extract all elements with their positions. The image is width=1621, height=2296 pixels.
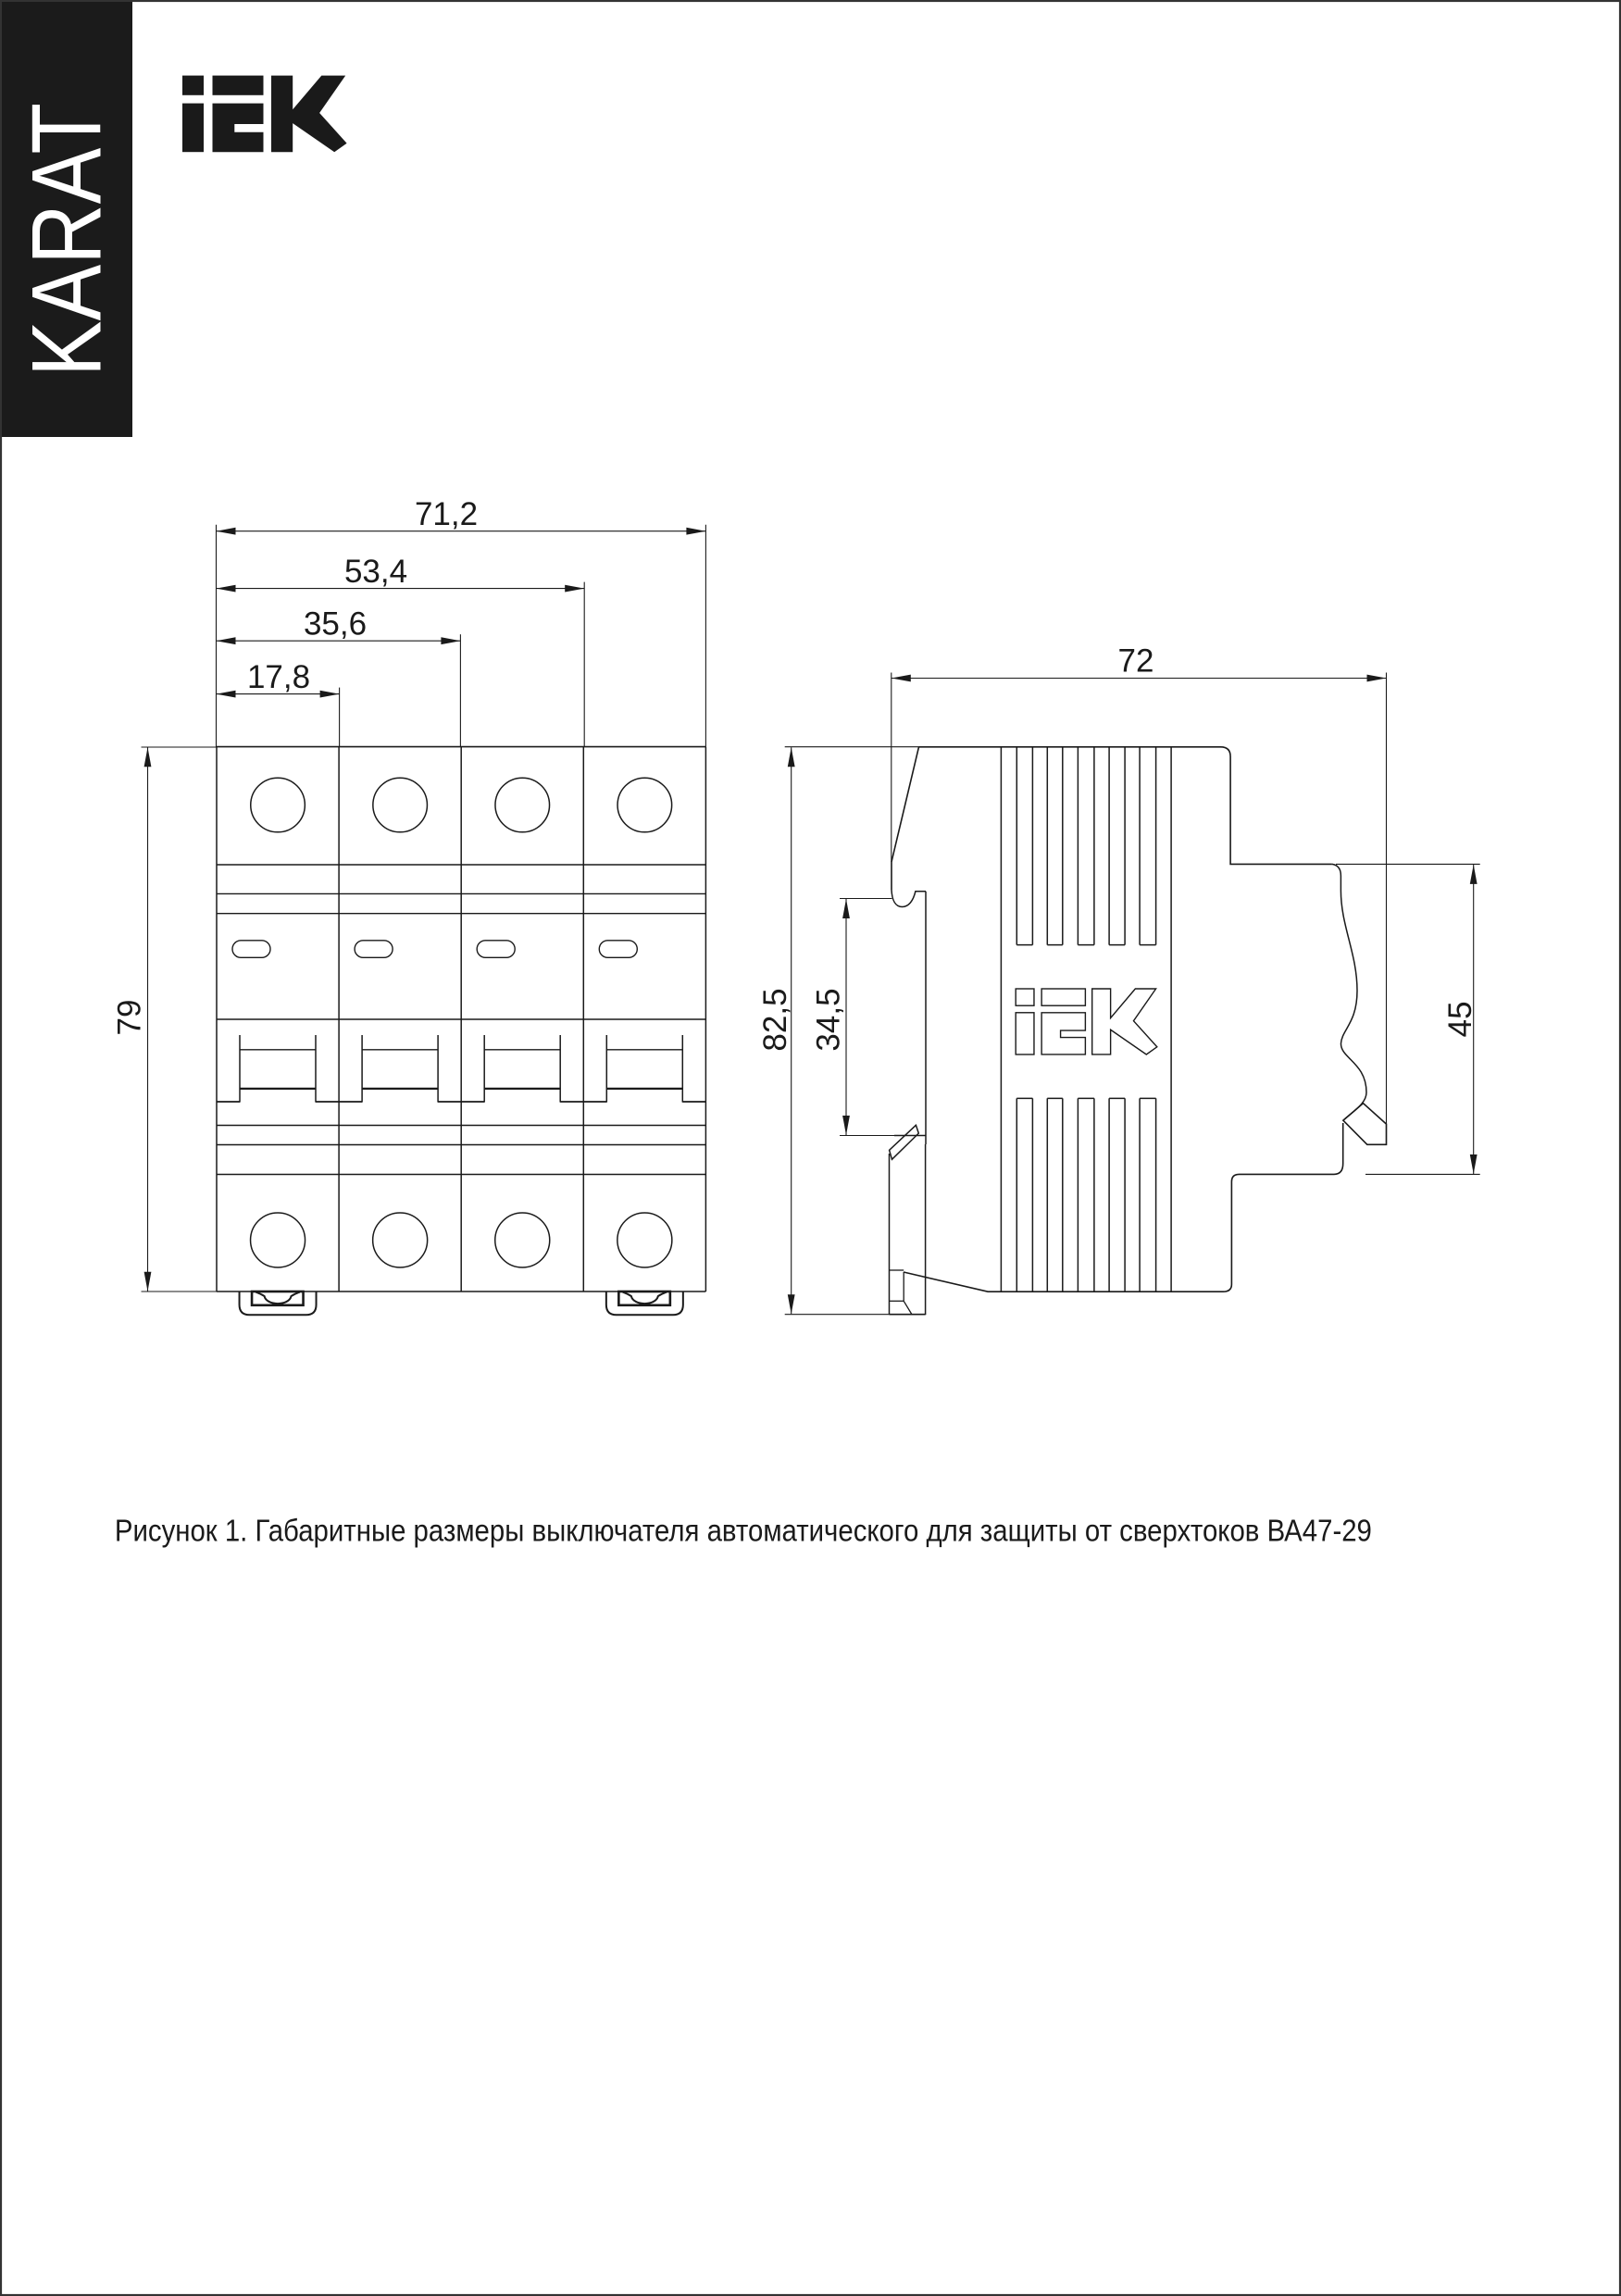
svg-text:Рисунок 1. Габаритные размеры: Рисунок 1. Габаритные размеры выключател… — [115, 1514, 1372, 1548]
svg-text:17,8: 17,8 — [247, 659, 310, 695]
svg-text:KARAT: KARAT — [11, 103, 122, 377]
svg-text:72: 72 — [1118, 643, 1154, 680]
svg-text:34,5: 34,5 — [811, 988, 847, 1051]
svg-text:79: 79 — [112, 1000, 148, 1036]
svg-text:53,4: 53,4 — [344, 554, 407, 590]
svg-text:35,6: 35,6 — [304, 606, 367, 643]
svg-text:71,2: 71,2 — [415, 496, 478, 532]
svg-text:82,5: 82,5 — [757, 988, 793, 1051]
svg-text:45: 45 — [1442, 1001, 1478, 1037]
